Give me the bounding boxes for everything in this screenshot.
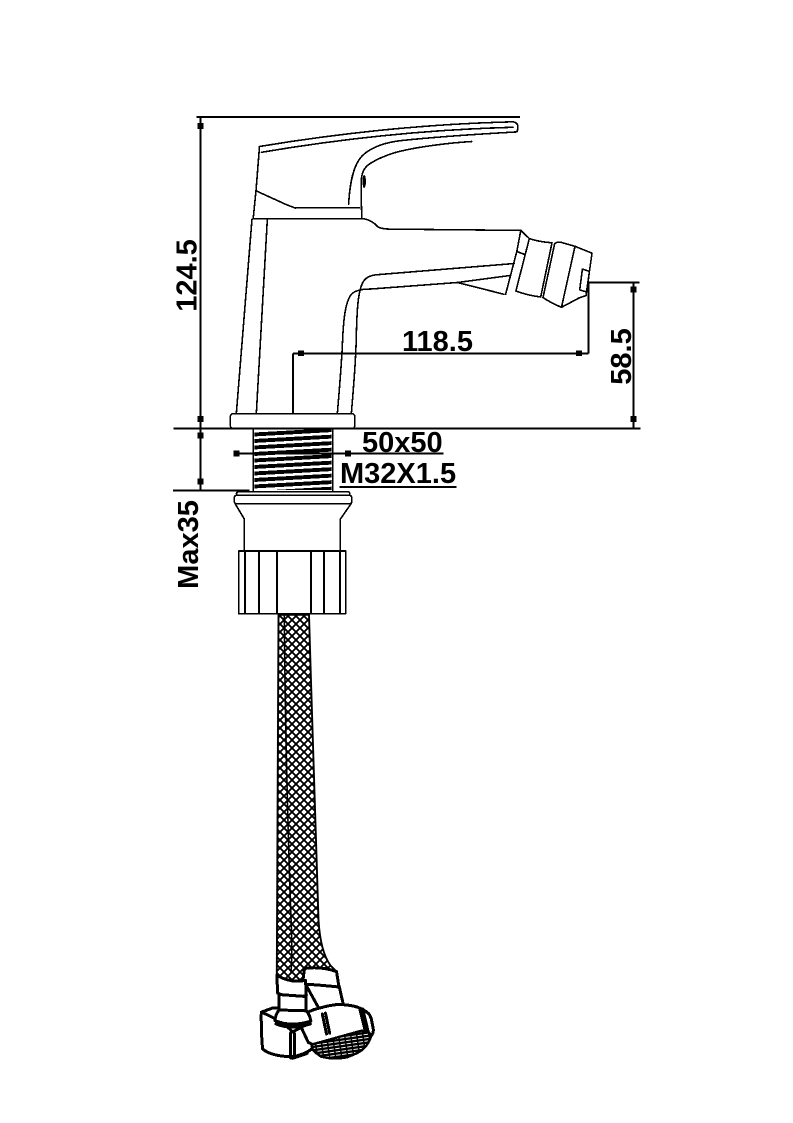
svg-text:50x50: 50x50: [362, 427, 443, 459]
svg-text:124.5: 124.5: [172, 239, 204, 312]
svg-text:58.5: 58.5: [606, 328, 638, 384]
svg-text:118.5: 118.5: [402, 326, 473, 358]
svg-text:M32X1.5: M32X1.5: [340, 458, 456, 490]
svg-text:Max35: Max35: [173, 500, 205, 589]
